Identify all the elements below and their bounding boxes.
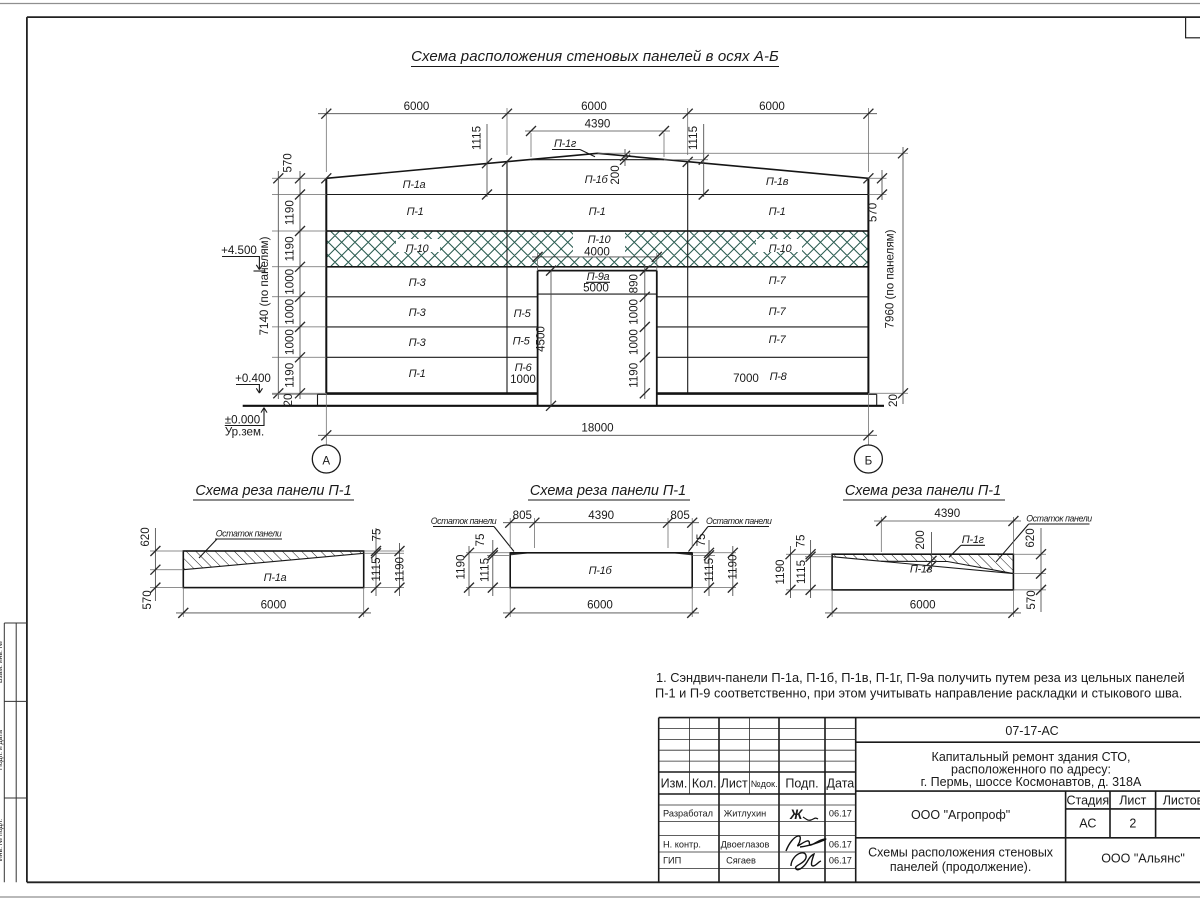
svg-text:6000: 6000 (910, 599, 936, 612)
svg-text:200: 200 (609, 165, 622, 184)
svg-text:Дата: Дата (827, 777, 855, 791)
svg-text:1190: 1190 (394, 557, 407, 582)
svg-text:П-5: П-5 (514, 308, 532, 320)
svg-text:Остаток панели: Остаток панели (1026, 514, 1092, 524)
svg-text:П-3: П-3 (409, 277, 427, 289)
svg-text:ООО "Агропроф": ООО "Агропроф" (911, 808, 1010, 822)
svg-text:1115: 1115 (703, 558, 716, 582)
svg-text:20: 20 (887, 394, 900, 407)
svg-text:570: 570 (282, 153, 295, 172)
svg-text:Ж: Ж (789, 807, 804, 822)
svg-text:П-1в: П-1в (766, 176, 789, 188)
svg-text:П-3: П-3 (409, 337, 427, 349)
svg-text:75: 75 (695, 534, 708, 547)
svg-text:Изм.: Изм. (661, 777, 688, 791)
svg-text:Схема расположения стеновых па: Схема расположения стеновых панелей в ос… (411, 48, 779, 65)
svg-text:АС: АС (1079, 817, 1096, 831)
svg-text:Житлухин: Житлухин (724, 809, 766, 819)
svg-text:1115: 1115 (471, 126, 484, 150)
svg-text:+4.500: +4.500 (221, 244, 257, 257)
svg-text:Подп. и дата: Подп. и дата (0, 730, 4, 770)
svg-text:1190: 1190 (727, 555, 740, 580)
svg-text:Остаток панели: Остаток панели (216, 529, 282, 539)
svg-text:1000: 1000 (510, 373, 536, 386)
svg-text:П-1в: П-1в (910, 564, 933, 576)
svg-text:07-17-АС: 07-17-АС (1005, 724, 1058, 738)
svg-text:ГИП: ГИП (663, 856, 681, 866)
svg-text:Кол.: Кол. (692, 777, 717, 791)
svg-text:А: А (322, 455, 330, 468)
svg-text:Схема реза панели П-1: Схема реза панели П-1 (530, 483, 686, 499)
svg-text:4390: 4390 (585, 118, 611, 131)
svg-text:Н. контр.: Н. контр. (663, 840, 701, 850)
svg-text:П-8: П-8 (770, 371, 788, 383)
svg-text:Остаток панели: Остаток панели (431, 516, 497, 526)
svg-text:805: 805 (513, 509, 532, 522)
svg-text:П-3: П-3 (409, 307, 427, 319)
svg-text:П-10: П-10 (406, 243, 430, 255)
svg-text:П-7: П-7 (769, 334, 787, 346)
svg-text:1190: 1190 (284, 363, 297, 388)
svg-text:Двоеглазов: Двоеглазов (721, 840, 770, 850)
svg-text:Схема реза панели П-1: Схема реза панели П-1 (845, 483, 1001, 499)
svg-text:7960 (по панелям): 7960 (по панелям) (884, 229, 897, 328)
svg-text:7140 (по панелям): 7140 (по панелям) (258, 236, 271, 335)
svg-text:1115: 1115 (795, 560, 808, 584)
svg-text:06.17: 06.17 (829, 856, 852, 866)
svg-text:570: 570 (1025, 590, 1038, 609)
svg-text:Б: Б (865, 455, 873, 468)
svg-text:панелей (продолжение).: панелей (продолжение). (890, 860, 1031, 874)
svg-text:6000: 6000 (581, 100, 607, 113)
svg-text:П-1: П-1 (589, 206, 606, 218)
svg-text:1115: 1115 (479, 558, 492, 582)
svg-text:Схемы расположения стеновых: Схемы расположения стеновых (868, 846, 1054, 860)
svg-text:75: 75 (371, 529, 384, 542)
svg-text:П-7: П-7 (769, 275, 787, 287)
svg-text:Разработал: Разработал (663, 809, 713, 819)
svg-text:П-10: П-10 (769, 243, 793, 255)
svg-text:1. Сэндвич-панели П-1а, П-1б,: 1. Сэндвич-панели П-1а, П-1б, П-1в, П-1г… (656, 670, 1185, 685)
svg-text:№док.: №док. (751, 779, 778, 789)
svg-text:570: 570 (141, 590, 154, 609)
svg-text:Подп.: Подп. (785, 777, 818, 791)
svg-text:П-10: П-10 (588, 234, 612, 246)
svg-text:570: 570 (867, 203, 880, 222)
svg-text:06.17: 06.17 (829, 809, 852, 819)
svg-text:ООО "Альянс": ООО "Альянс" (1101, 852, 1185, 866)
svg-text:Остаток панели: Остаток панели (706, 516, 772, 526)
svg-text:П-1а: П-1а (264, 572, 287, 584)
svg-text:890: 890 (628, 274, 641, 293)
svg-text:200: 200 (914, 530, 927, 549)
svg-text:75: 75 (474, 534, 487, 547)
svg-text:П-5: П-5 (513, 336, 531, 348)
svg-text:П-7: П-7 (769, 306, 787, 318)
svg-text:Инв. № подл.: Инв. № подл. (0, 819, 4, 861)
svg-text:1000: 1000 (284, 269, 297, 295)
svg-text:Стадия: Стадия (1066, 794, 1109, 808)
svg-text:1000: 1000 (284, 299, 297, 325)
svg-text:П-1: П-1 (407, 206, 424, 218)
svg-text:П-1г: П-1г (554, 138, 577, 150)
svg-text:П-1г: П-1г (962, 534, 985, 546)
svg-text:Сягаев: Сягаев (726, 856, 756, 866)
svg-text:1190: 1190 (284, 200, 297, 225)
svg-text:7000: 7000 (733, 372, 759, 385)
svg-text:4390: 4390 (588, 509, 614, 522)
svg-text:1190: 1190 (455, 555, 468, 580)
svg-text:6000: 6000 (261, 599, 287, 612)
svg-text:18000: 18000 (581, 422, 613, 435)
svg-text:6000: 6000 (404, 100, 430, 113)
svg-text:620: 620 (1024, 528, 1037, 547)
svg-text:1190: 1190 (628, 363, 641, 388)
svg-text:П-1: П-1 (409, 368, 426, 380)
svg-text:1190: 1190 (284, 236, 297, 261)
svg-text:Взам. инв. №: Взам. инв. № (0, 641, 4, 683)
svg-text:+0.400: +0.400 (235, 372, 271, 385)
svg-text:П-1б: П-1б (585, 174, 609, 186)
svg-text:Ур.зем.: Ур.зем. (225, 426, 264, 439)
svg-text:2: 2 (1129, 817, 1136, 831)
svg-text:г. Пермь, шоссе Космонавтов, д: г. Пермь, шоссе Космонавтов, д. 318А (921, 775, 1142, 789)
svg-text:П-1б: П-1б (589, 565, 613, 577)
svg-text:1190: 1190 (774, 560, 787, 585)
svg-text:6000: 6000 (587, 599, 613, 612)
svg-text:Схема реза панели П-1: Схема реза панели П-1 (195, 483, 351, 499)
svg-text:4500: 4500 (535, 326, 548, 352)
svg-text:805: 805 (670, 509, 689, 522)
svg-text:5000: 5000 (583, 282, 609, 295)
svg-text:1115: 1115 (370, 557, 383, 581)
svg-text:1115: 1115 (687, 126, 700, 150)
svg-text:20: 20 (282, 394, 295, 407)
svg-text:1000: 1000 (628, 329, 641, 355)
svg-text:75: 75 (795, 535, 808, 548)
svg-text:Лист: Лист (721, 777, 748, 791)
svg-text:4390: 4390 (934, 507, 960, 520)
svg-text:П-1: П-1 (769, 206, 786, 218)
svg-text:П-1 и П-9 соответственно, при: П-1 и П-9 соответственно, при этом учиты… (655, 686, 1182, 701)
svg-text:06.17: 06.17 (829, 840, 852, 850)
svg-text:П-1а: П-1а (403, 179, 426, 191)
svg-text:6000: 6000 (759, 100, 785, 113)
svg-text:1000: 1000 (284, 329, 297, 355)
svg-text:1000: 1000 (628, 299, 641, 325)
svg-text:Лист: Лист (1119, 794, 1146, 808)
svg-text:620: 620 (139, 527, 152, 546)
svg-text:Листов: Листов (1163, 794, 1200, 808)
